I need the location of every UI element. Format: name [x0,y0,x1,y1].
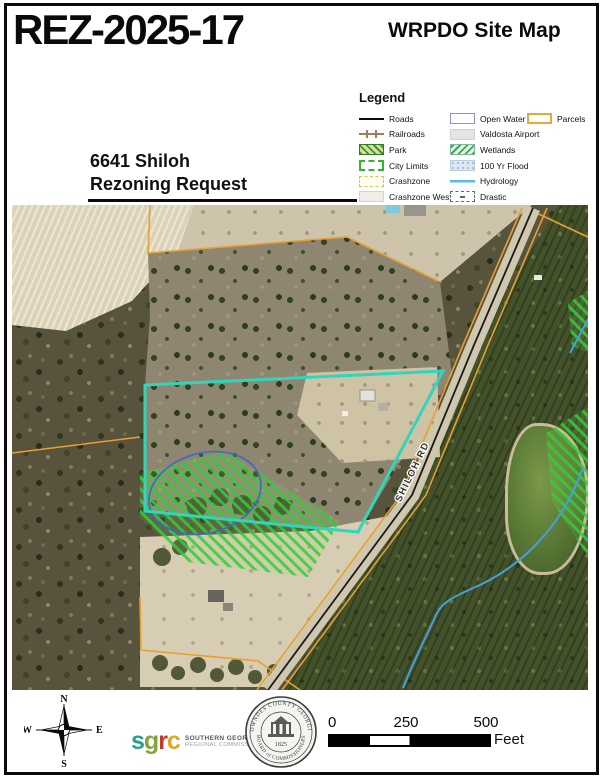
subtitle-request: Rezoning Request [90,173,247,196]
case-number-title: REZ-2025-17 [13,6,243,54]
airport-swatch-icon [450,129,475,140]
scale-label-0: 0 [328,714,336,731]
legend-column-3: Parcels [527,111,585,127]
legend-item: City Limits [359,158,463,174]
compass-south-label: S [61,759,67,770]
scale-bar-segments [328,734,491,747]
legend-label: Drastic [480,192,506,202]
subtitle-address: 6641 Shiloh [90,150,247,173]
legend-label: Crashzone West [389,192,452,202]
legend-label: City Limits [389,161,428,171]
railroad-line-icon [359,129,384,140]
sgrc-logo: sgrc SOUTHERN GEORGIA REGIONAL COMMISSIO… [131,729,260,754]
flood-swatch-icon [450,160,475,171]
legend-title: Legend [359,90,589,105]
legend-label: Wetlands [480,145,515,155]
park-swatch-icon [359,144,384,155]
legend-label: Hydrology [480,176,518,186]
sgrc-letter-s: s [131,727,144,755]
drastic-swatch-icon [450,191,475,202]
legend-label: Open Water [480,114,526,124]
sgrc-wordmark: sgrc [131,729,180,754]
scale-label-250: 250 [384,714,428,731]
legend-item: Crashzone West [359,189,463,205]
sgrc-letter-g: g [144,727,158,755]
sgrc-letter-c: c [167,727,180,755]
county-seal: LOWNDES COUNTY GEORGIA BOARD of COMMISSI… [243,692,319,772]
legend-label: Valdosta Airport [480,129,539,139]
legend-label: Roads [389,114,414,124]
legend-label: 100 Yr Flood [480,161,529,171]
legend-item: Drastic [450,189,541,205]
compass-west-label: W [24,725,32,736]
compass-north-label: N [60,694,68,705]
road-row-west-line [257,208,522,690]
pool [386,205,400,213]
scale-bar: 0 250 500 Feet [326,712,586,762]
legend-column-2: Open Water Valdosta Airport Wetlands 100… [450,111,541,220]
city-limits-swatch-icon [359,160,384,171]
legend-label: Park [389,145,406,155]
crashzone-west-swatch-icon [359,191,384,202]
map-type-title: WRPDO Site Map [388,19,561,43]
sgrc-letter-r: r [158,727,167,755]
legend-item: Crashzone [359,173,463,189]
roads-line-icon [359,113,384,124]
aerial-site-map: SHILOH RD [12,205,588,690]
legend-column-1: Roads Railroads Park City Limits Crashzo… [359,111,463,220]
legend-item: Wetlands [450,142,541,158]
legend-label: Railroads [389,129,425,139]
request-subtitle: 6641 Shiloh Rezoning Request [90,150,247,196]
site-map-page: REZ-2025-17 WRPDO Site Map 6641 Shiloh R… [0,0,600,776]
crashzone-swatch-icon [359,176,384,187]
legend-item: Roads [359,111,463,127]
legend-item: Hydrology [450,173,541,189]
scale-unit-label: Feet [494,731,524,748]
legend-item: Valdosta Airport [450,127,541,143]
legend-item: Parcels [527,111,585,127]
compass-rose: N E S W [24,694,104,770]
hydrology-line-icon [450,176,475,187]
open-water-swatch-icon [450,113,475,124]
legend-item: Railroads [359,127,463,143]
legend-item: 100 Yr Flood [450,158,541,174]
seal-year: 1825 [275,742,287,748]
map-overlay: SHILOH RD [12,205,588,690]
scale-label-500: 500 [464,714,508,731]
legend-label: Crashzone [389,176,430,186]
compass-east-label: E [96,725,103,736]
legend-panel: Legend Roads Railroads Park City Limits … [357,90,589,202]
wetlands-swatch-icon [450,144,475,155]
parcels-swatch-icon [527,113,552,124]
legend-label: Parcels [557,114,585,124]
legend-item: Park [359,142,463,158]
